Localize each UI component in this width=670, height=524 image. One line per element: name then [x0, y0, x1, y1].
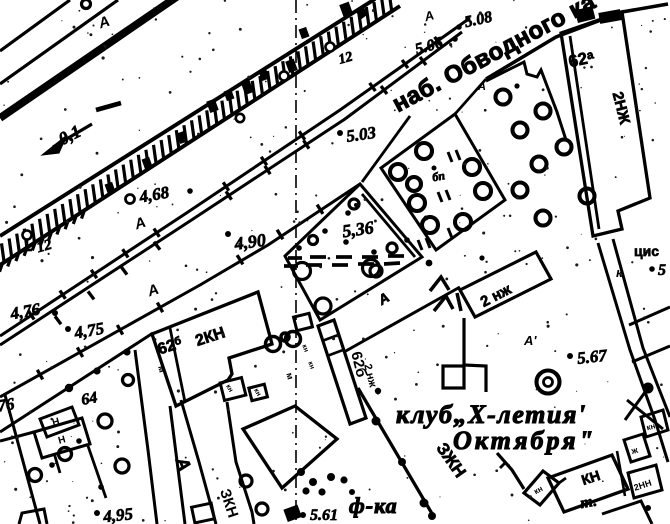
- svg-text:5.67: 5.67: [576, 346, 609, 368]
- svg-text:5.61: 5.61: [310, 507, 338, 524]
- svg-text:клуб„Х-летия': клуб„Х-летия': [396, 400, 587, 429]
- svg-text:ф-ка: ф-ка: [349, 493, 398, 518]
- svg-text:64: 64: [80, 389, 99, 409]
- svg-text:т.: т.: [579, 493, 598, 513]
- svg-text:Октября": Октября": [453, 426, 596, 455]
- svg-text:А: А: [477, 81, 486, 93]
- svg-text:А': А': [523, 333, 537, 348]
- svg-text:5: 5: [658, 262, 666, 279]
- svg-text:4,95: 4,95: [101, 504, 134, 524]
